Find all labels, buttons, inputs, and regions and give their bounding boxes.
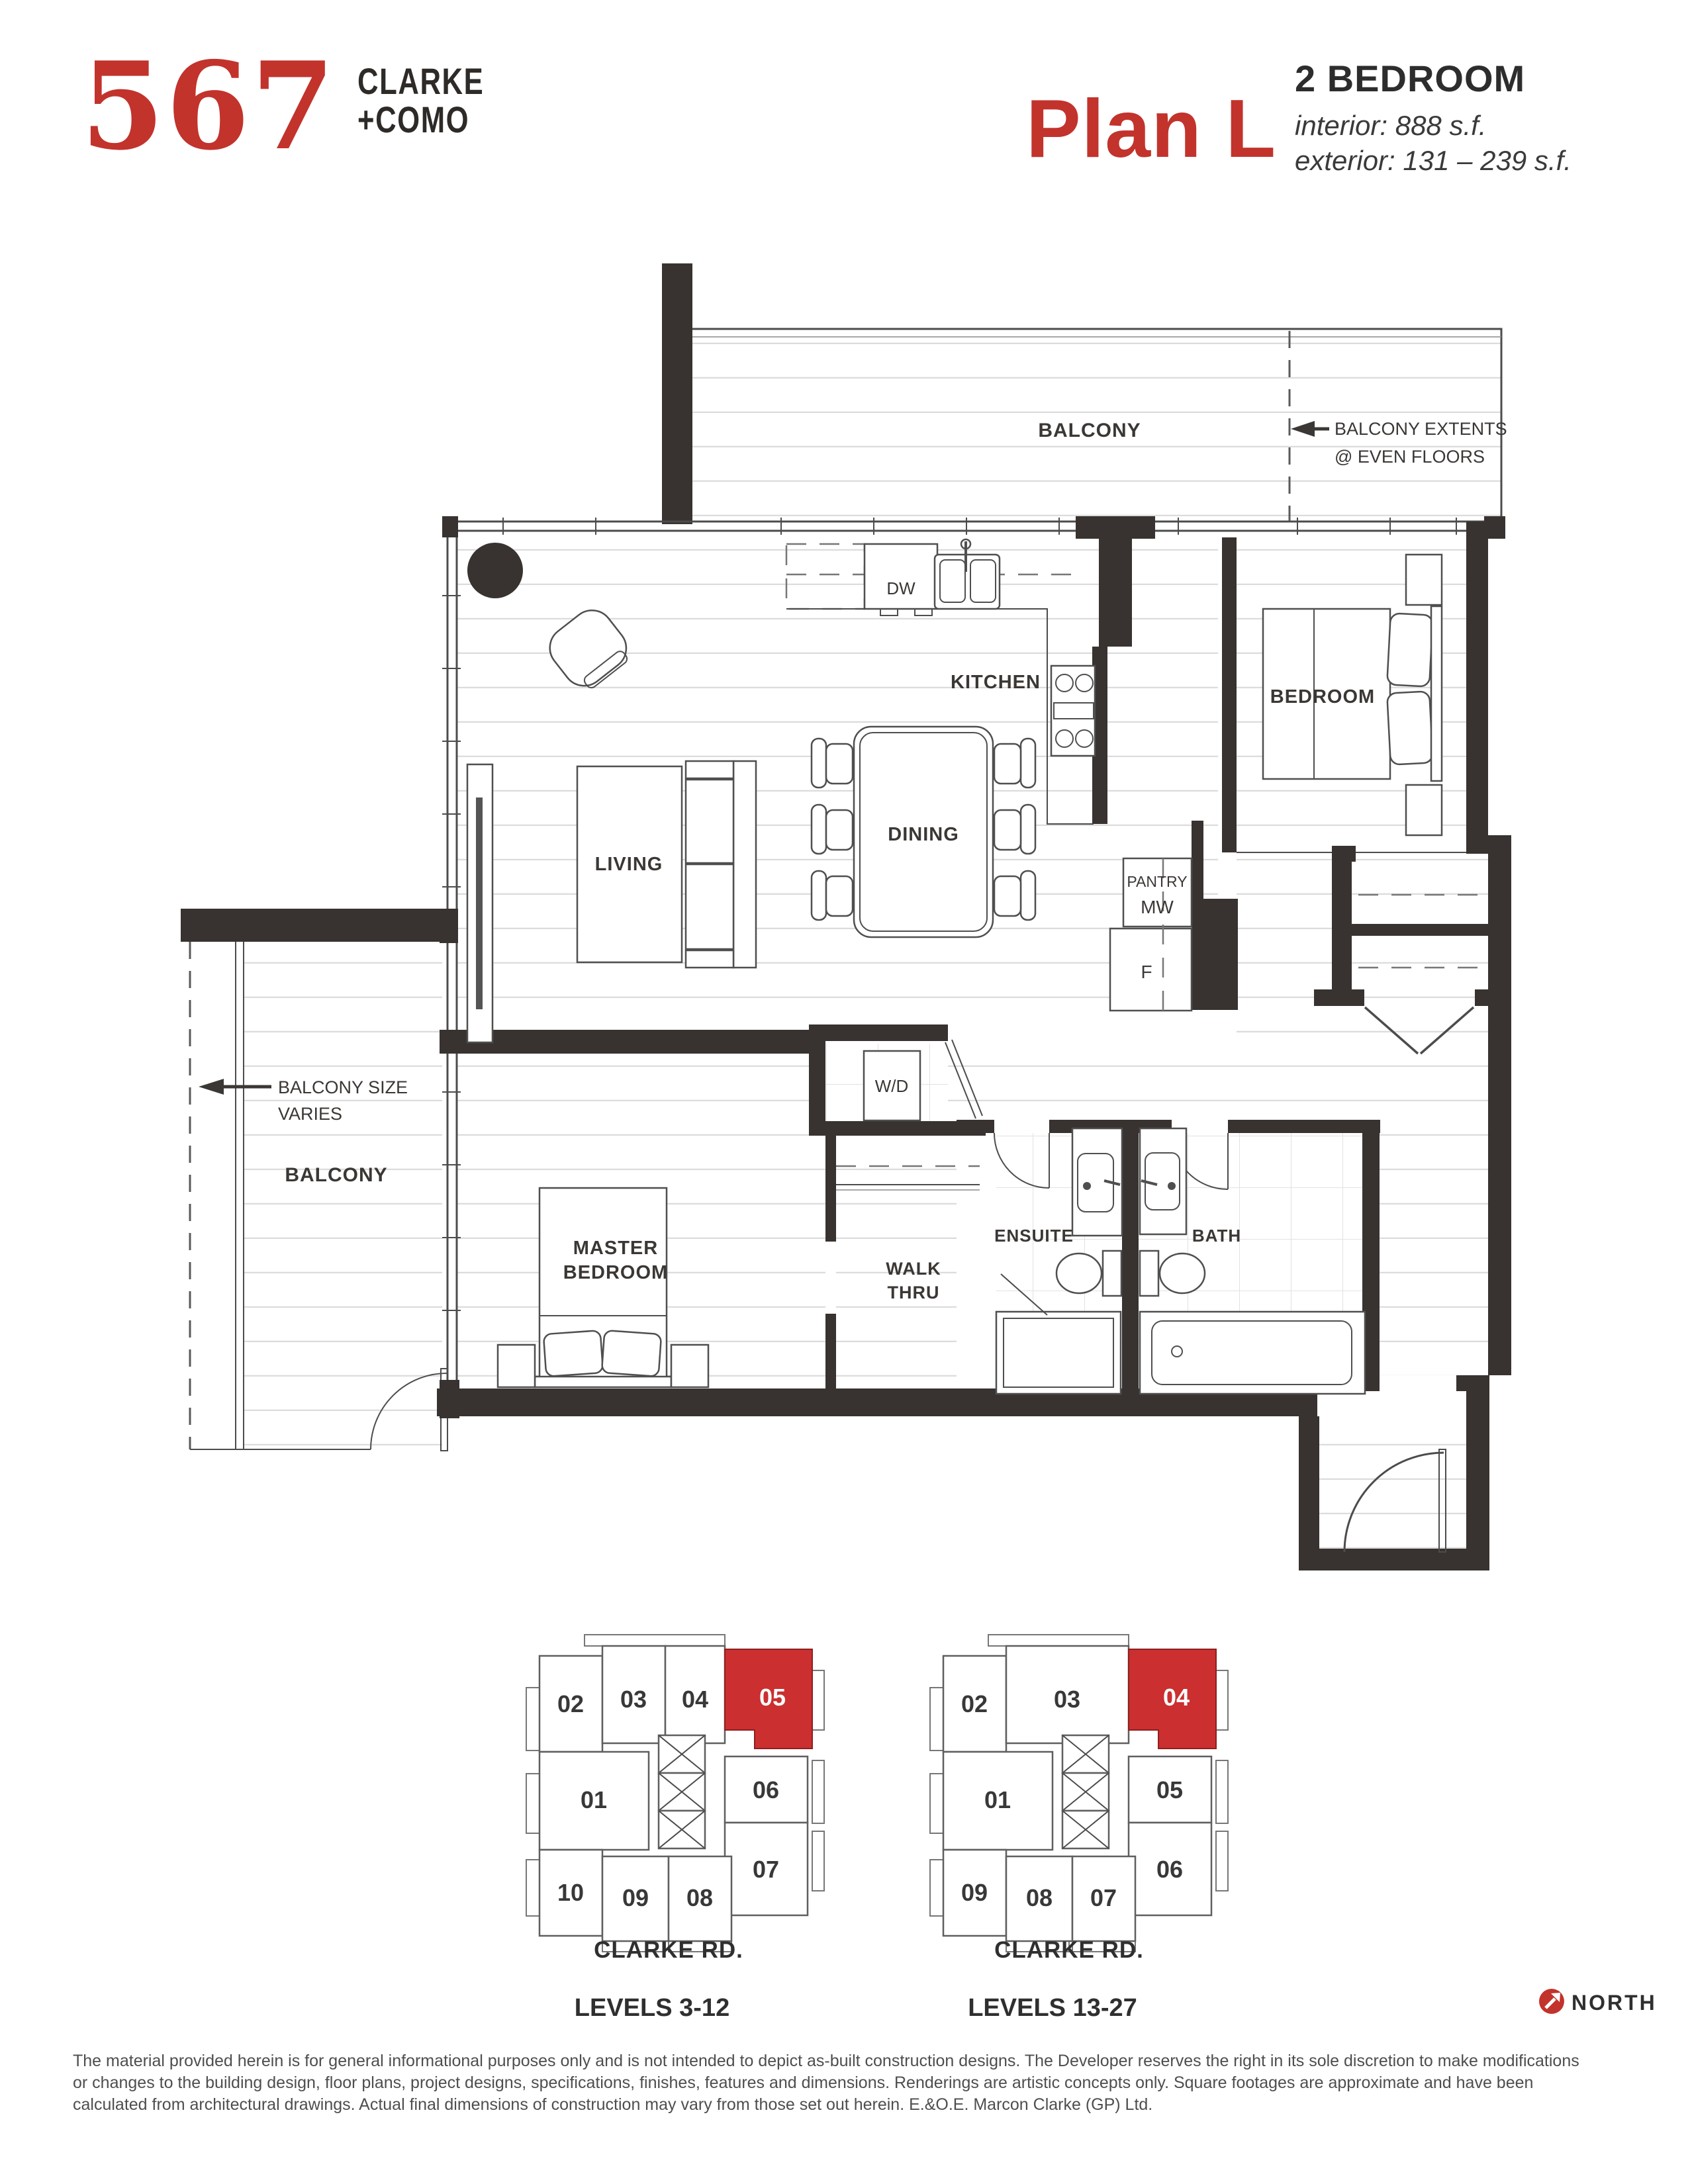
note-balcony-size-1: BALCONY SIZE bbox=[278, 1077, 408, 1097]
disclaimer: The material provided herein is for gene… bbox=[73, 2050, 1635, 2116]
note-balcony-size-2: VARIES bbox=[278, 1104, 342, 1124]
keyplan-unit-highlighted: 05 bbox=[759, 1684, 786, 1711]
keyplan-unit: 08 bbox=[1026, 1884, 1053, 1911]
label-dishwasher: DW bbox=[886, 578, 915, 598]
sofa bbox=[686, 761, 756, 968]
label-microwave: MW bbox=[1141, 897, 1174, 917]
north-label: NORTH bbox=[1571, 1991, 1657, 2015]
disclaimer-line-1: The material provided herein is for gene… bbox=[73, 2050, 1635, 2072]
column bbox=[467, 543, 523, 598]
disclaimer-line-3: calculated from architectural drawings. … bbox=[73, 2094, 1635, 2116]
toilet-tank bbox=[1103, 1251, 1121, 1296]
keyplan-levels-3-12: 02 03 04 05 01 06 07 10 09 08 bbox=[526, 1635, 824, 1952]
dining-furniture: DINING bbox=[812, 727, 1035, 937]
keyplan-unit: 01 bbox=[581, 1786, 607, 1813]
keyplan1-levels: LEVELS 3-12 bbox=[575, 1994, 729, 2022]
disclaimer-line-2: or changes to the building design, floor… bbox=[73, 2072, 1635, 2094]
label-washer-dryer: W/D bbox=[875, 1076, 909, 1096]
keyplan-unit: 03 bbox=[1054, 1686, 1080, 1713]
toilet bbox=[1056, 1253, 1102, 1293]
room-label-balcony-top: BALCONY bbox=[1038, 420, 1141, 441]
label-fridge: F bbox=[1141, 962, 1152, 982]
nightstand bbox=[1406, 785, 1442, 835]
keyplan-unit: 02 bbox=[961, 1690, 988, 1717]
elevator-core-icon bbox=[659, 1735, 705, 1848]
note-balcony-extents-1: BALCONY EXTENTS bbox=[1335, 419, 1507, 439]
keyplan-unit: 04 bbox=[682, 1686, 708, 1713]
headboard bbox=[1431, 606, 1442, 781]
north-indicator: NORTH bbox=[1539, 1989, 1657, 2015]
keyplan-unit: 03 bbox=[620, 1686, 647, 1713]
dishwasher bbox=[865, 544, 937, 609]
shower bbox=[996, 1312, 1121, 1394]
keyplan2-street: CLARKE RD. bbox=[994, 1937, 1144, 1963]
floor-plan: BALCONY BALCONY EXTENTS @ EVEN FLOORS BA… bbox=[181, 263, 1511, 1570]
keyplan-unit: 07 bbox=[1090, 1884, 1117, 1911]
note-balcony-extents-2: @ EVEN FLOORS bbox=[1335, 447, 1485, 467]
room-label-bedroom: BEDROOM bbox=[1270, 686, 1375, 707]
elevator-core-icon bbox=[1062, 1735, 1109, 1848]
keyplan-unit: 10 bbox=[557, 1879, 584, 1906]
toilet bbox=[1160, 1253, 1205, 1293]
tv bbox=[476, 797, 483, 1009]
keyplan-unit: 09 bbox=[622, 1884, 649, 1911]
cooktop bbox=[1051, 666, 1095, 756]
keyplan-unit-highlighted: 04 bbox=[1163, 1684, 1190, 1711]
room-label-master-2: BEDROOM bbox=[563, 1262, 668, 1283]
room-label-balcony-left: BALCONY bbox=[285, 1164, 387, 1186]
keyplan-unit: 05 bbox=[1156, 1776, 1183, 1803]
bathtub bbox=[1140, 1312, 1365, 1394]
size-arrow-icon bbox=[199, 1079, 224, 1095]
room-label-dining: DINING bbox=[888, 824, 959, 845]
room-label-living: LIVING bbox=[595, 854, 663, 875]
label-pantry: PANTRY bbox=[1127, 873, 1187, 890]
room-label-walk-2: THRU bbox=[888, 1283, 940, 1302]
room-label-master-1: MASTER bbox=[573, 1238, 658, 1259]
room-label-kitchen: KITCHEN bbox=[951, 672, 1041, 693]
keyplan-levels-13-27: 02 03 04 01 05 06 09 08 07 bbox=[930, 1635, 1228, 1952]
floor-plan-drawing: BALCONY BALCONY EXTENTS @ EVEN FLOORS BA… bbox=[0, 0, 1688, 2184]
nightstand bbox=[498, 1345, 535, 1387]
keyplan1-street: CLARKE RD. bbox=[594, 1937, 743, 1963]
toilet-tank bbox=[1140, 1251, 1158, 1296]
keyplan2-levels: LEVELS 13-27 bbox=[968, 1994, 1137, 2022]
keyplan-unit: 08 bbox=[686, 1884, 713, 1911]
room-label-walk-1: WALK bbox=[886, 1259, 941, 1279]
room-label-bath: BATH bbox=[1192, 1226, 1241, 1246]
room-label-ensuite: ENSUITE bbox=[994, 1226, 1074, 1246]
nightstand bbox=[1406, 555, 1442, 605]
keyplan-unit: 07 bbox=[753, 1856, 779, 1883]
headboard bbox=[535, 1377, 671, 1387]
keyplan-unit: 02 bbox=[557, 1690, 584, 1717]
keyplan-unit: 01 bbox=[984, 1786, 1011, 1813]
nightstand bbox=[671, 1345, 708, 1387]
keyplan-unit: 09 bbox=[961, 1879, 988, 1906]
keyplan-unit: 06 bbox=[753, 1776, 779, 1803]
floorplan-sheet: 567 CLARKE +COMO Plan L 2 BEDROOM interi… bbox=[0, 0, 1688, 2184]
keyplan-unit: 06 bbox=[1156, 1856, 1183, 1883]
